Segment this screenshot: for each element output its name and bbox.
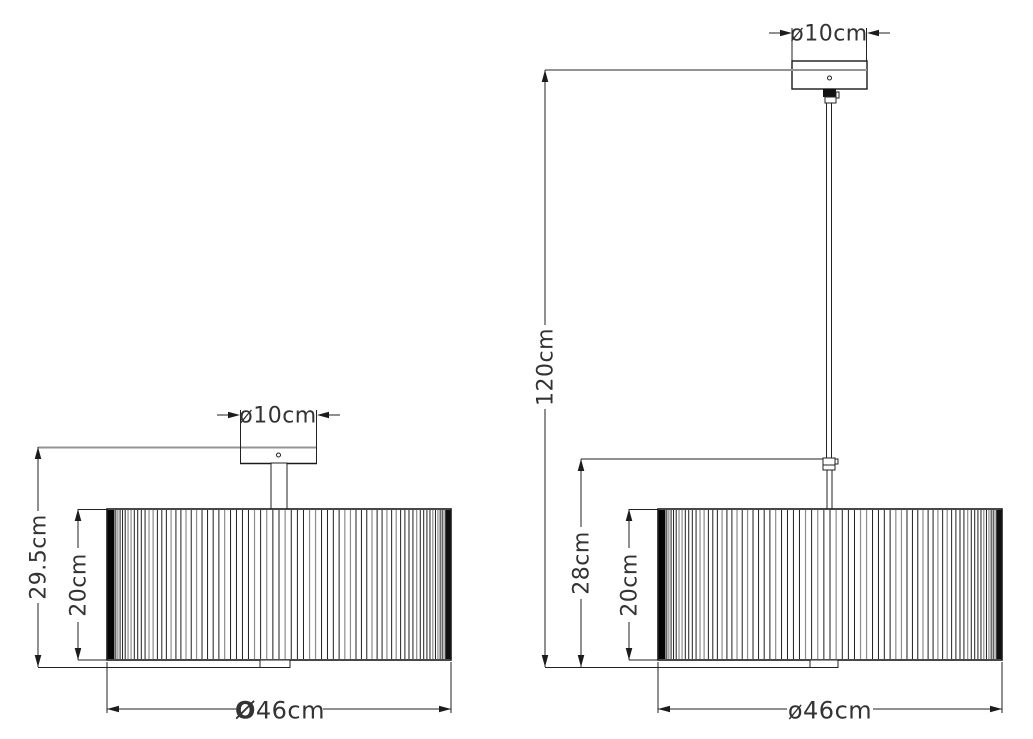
arrowhead-icon bbox=[542, 655, 549, 667]
arrowhead-icon bbox=[542, 70, 549, 82]
arrowhead-icon bbox=[990, 706, 1002, 713]
canopy-diameter-label: ø10cm bbox=[790, 22, 867, 47]
socket-cover bbox=[260, 660, 290, 668]
shade-height-label: 20cm bbox=[618, 553, 643, 617]
socket-cover bbox=[810, 660, 838, 668]
arrowhead-icon bbox=[35, 655, 42, 667]
shade-diameter-label: ø46cm bbox=[788, 696, 872, 724]
canopy-screw-hole bbox=[277, 453, 281, 457]
connector-set-screw bbox=[835, 459, 838, 464]
pendant-version-diagram: ø10cm 120cm 28cm 20cm ø46cm bbox=[531, 22, 1002, 725]
arrowhead-icon bbox=[867, 30, 879, 37]
drum-shade-left-edge-band bbox=[108, 510, 115, 659]
min-drop-label: 28cm bbox=[570, 531, 595, 595]
arrowhead-icon bbox=[75, 509, 82, 521]
diameter-symbol: Ø bbox=[235, 696, 256, 724]
strain-relief bbox=[823, 89, 836, 97]
shade-height-label: 20cm bbox=[67, 553, 92, 617]
arrowhead-icon bbox=[317, 412, 329, 419]
drum-shade-right-edge-band bbox=[446, 510, 451, 659]
shade-diameter-label: Ø46cm bbox=[235, 696, 325, 724]
total-height-label: 29.5cm bbox=[27, 514, 52, 600]
rod-connector bbox=[823, 458, 835, 470]
arrowhead-icon bbox=[439, 706, 451, 713]
canopy bbox=[792, 61, 867, 89]
rod-coupler bbox=[825, 97, 836, 103]
arrowhead-icon bbox=[626, 648, 633, 660]
arrowhead-icon bbox=[75, 648, 82, 660]
drum-shade-left-edge-band bbox=[659, 510, 666, 659]
coupler-set-screw bbox=[836, 92, 839, 98]
drum-shade-right-edge-band bbox=[997, 510, 1002, 659]
suspension-rod-upper bbox=[827, 103, 832, 458]
arrowhead-icon bbox=[578, 655, 585, 667]
ceiling-version-diagram: ø10cm 29.5cm 20cm Ø46cm bbox=[24, 404, 451, 725]
arrowhead-icon bbox=[658, 706, 670, 713]
diameter-value: 46cm bbox=[256, 696, 325, 724]
lamp-dimension-drawing: ø10cm 29.5cm 20cm Ø46cm bbox=[0, 0, 1033, 739]
drum-shade bbox=[107, 509, 451, 660]
suspension-height-label: 120cm bbox=[534, 328, 559, 406]
suspension-rod-lower bbox=[827, 470, 832, 509]
drum-shade bbox=[658, 509, 1002, 660]
stem bbox=[271, 463, 287, 509]
drawing-svg: ø10cm 29.5cm 20cm Ø46cm bbox=[0, 0, 1033, 739]
canopy-diameter-label: ø10cm bbox=[239, 404, 316, 429]
arrowhead-icon bbox=[107, 706, 119, 713]
canopy-screw-hole bbox=[828, 76, 832, 80]
arrowhead-icon bbox=[578, 459, 585, 471]
arrowhead-icon bbox=[35, 447, 42, 459]
arrowhead-icon bbox=[626, 509, 633, 521]
arrowhead-icon bbox=[228, 412, 240, 419]
